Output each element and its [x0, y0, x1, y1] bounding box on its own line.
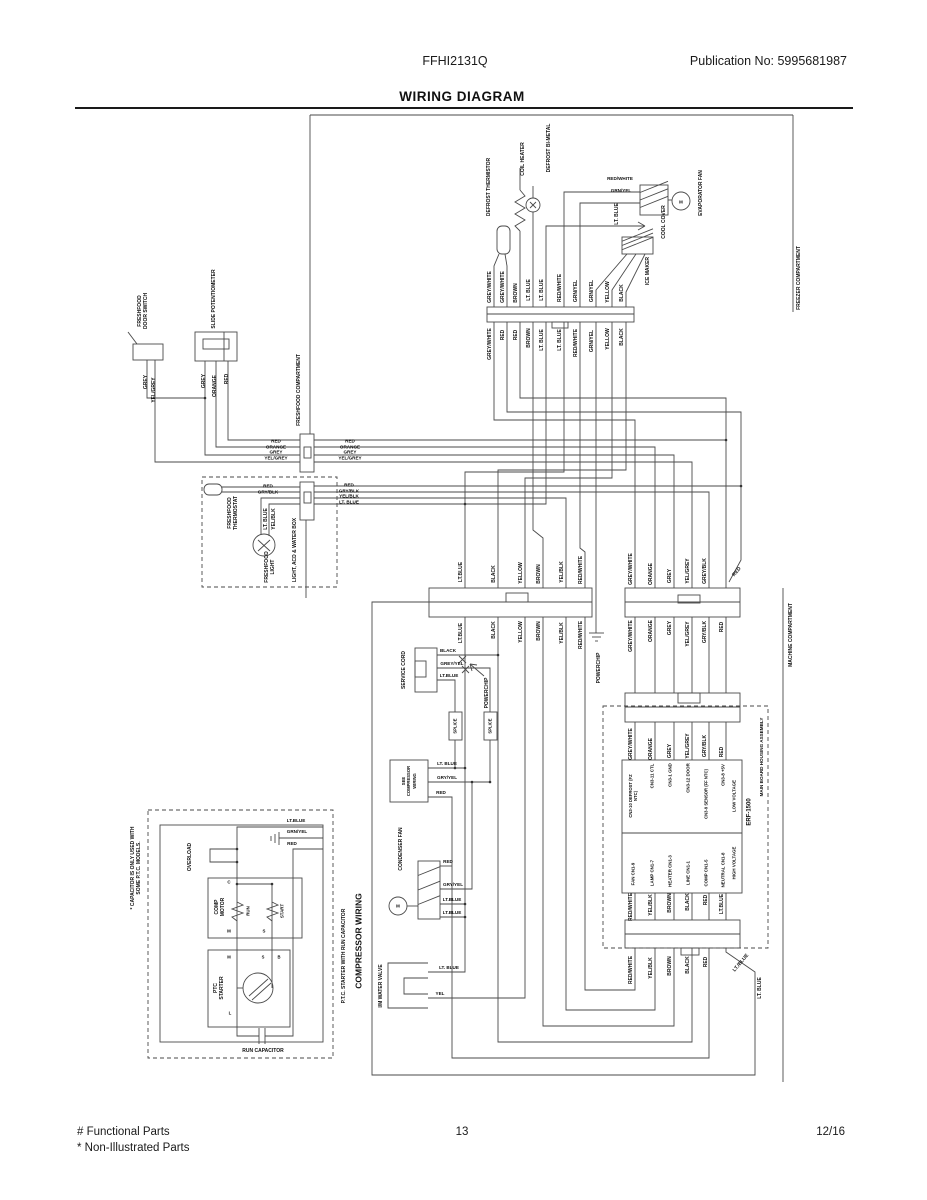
diagram-label: GREY/WHITE	[628, 553, 634, 585]
wire	[388, 963, 428, 1008]
wire	[515, 190, 525, 231]
diagram-label: YEL/BLK	[648, 957, 654, 978]
component-box	[429, 588, 592, 617]
diagram-label: YEL/BLK	[271, 508, 277, 529]
diagram-label: LT.BLUE	[287, 818, 306, 824]
diagram-label: FRESHFOOD THERMOSTAT	[227, 496, 240, 530]
wire	[437, 680, 455, 712]
diagram-label: COMP CN1-5	[703, 860, 709, 887]
diagram-label: ICE MAKER	[645, 257, 651, 285]
diagram-label: LT.BLUE	[719, 894, 725, 914]
wire	[372, 602, 755, 1075]
diagram-label: GRY/YEL	[443, 882, 463, 888]
diagram-label: RED	[703, 895, 709, 906]
diagram-label: GRN/YEL	[287, 829, 307, 835]
diagram-label: ORANGE	[648, 738, 654, 760]
diagram-label: CN3-9 SENSOR (FF NTC)	[703, 769, 708, 819]
diagram-label: OVERLOAD	[187, 843, 193, 871]
component-box	[300, 482, 314, 520]
wiring-diagram: FRESHFOOD DOOR SWITCHGREYYEL/GREYSLIDE P…	[0, 0, 927, 1200]
component-box	[625, 588, 740, 617]
diagram-label: GREY	[143, 375, 149, 389]
wire	[210, 849, 237, 862]
diagram-label: CONDENSER FAN	[398, 827, 404, 870]
junction-dot	[497, 654, 500, 657]
diagram-label: GREY/WHITE	[487, 328, 493, 360]
wire	[440, 782, 472, 889]
footer-functional-parts: # Functional Parts	[77, 1126, 170, 1138]
component-box	[304, 447, 311, 458]
diagram-label: FAN CN1-9	[630, 863, 636, 886]
diagram-label: S	[263, 928, 266, 934]
wire	[626, 254, 645, 307]
wire	[252, 983, 271, 1000]
diagram-label: FREEZER COMPARTMENT	[796, 246, 802, 310]
diagram-label: NEUTRAL CN1-8	[720, 853, 726, 888]
diagram-label: BROWN	[667, 956, 673, 975]
diagram-label: RED GRY/BLK YEL/BLK LT. BLUE	[339, 483, 360, 506]
diagram-label: GREY/WHITE	[628, 620, 634, 652]
diagram-label: CN3-1 GND	[667, 763, 673, 787]
diagram-label: GRN/YEL	[573, 280, 579, 302]
component-box	[195, 332, 237, 361]
wire	[566, 617, 655, 1010]
diagram-label: YEL/GREY	[685, 621, 691, 646]
diagram-label: ORANGE	[648, 620, 654, 642]
diagram-label: RED GRY/BLK	[258, 483, 279, 494]
hatch-line	[418, 896, 440, 905]
diagram-label: BROWN	[536, 621, 542, 640]
wire	[237, 827, 323, 878]
component-box	[418, 861, 440, 919]
component-box	[681, 948, 699, 955]
junction-dot	[464, 903, 467, 906]
junction-dot	[489, 781, 492, 784]
wire	[128, 332, 137, 344]
diagram-label: EVAPORATOR FAN	[698, 170, 704, 216]
wire	[465, 322, 546, 504]
diagram-label: S	[262, 954, 265, 959]
diagram-label: LT. BLUE	[757, 977, 763, 999]
diagram-label: CN3-12 DOOR	[685, 763, 691, 793]
footer-page-number: 13	[456, 1126, 469, 1138]
wire	[507, 322, 741, 582]
diagram-label: FRESHFOOD COMPARTMENT	[296, 354, 302, 426]
diagram-label: ORANGE	[648, 563, 654, 585]
diagram-label: BROWN	[536, 564, 542, 583]
diagram-label: RED	[436, 790, 446, 796]
diagram-label: YELLOW	[605, 328, 611, 349]
diagram-label: LT.BLUE	[440, 673, 459, 679]
diagram-label: BLACK	[619, 328, 625, 346]
diagram-label: LT. BLUE	[526, 279, 532, 301]
diagram-label: BLACK	[685, 956, 691, 974]
diagram-label: * CAPACITOR IS ONLY USED WITH SOME P.T.C…	[130, 827, 143, 910]
diagram-label: P.T.C. STARTER WITH RUN CAPACITOR	[341, 909, 347, 1004]
diagram-label: RED	[719, 622, 725, 633]
wire	[543, 617, 674, 1026]
diagram-label: PTC STARTER	[213, 976, 226, 999]
diagram-label: HEATER CN1-3	[667, 855, 673, 887]
diagram-label: YEL/BLK	[648, 894, 654, 915]
diagram-label: FRESHFOOD DOOR SWITCH	[137, 293, 150, 329]
diagram-label: C	[227, 879, 230, 885]
diagram-label: LT.BLUE	[458, 562, 464, 582]
component-box	[506, 593, 528, 602]
diagram-label: BLACK	[491, 565, 497, 583]
diagram-label: LOW VOLTAGE	[731, 780, 737, 812]
wire	[228, 361, 300, 440]
diagram-label: RUN CAPACITOR	[242, 1048, 283, 1054]
junction-dot	[204, 397, 207, 400]
diagram-label: M	[679, 199, 683, 205]
component-box	[415, 661, 426, 677]
diagram-label: POWERCHIP	[484, 678, 490, 709]
dashed-boundary-box	[148, 810, 333, 1058]
diagram-label: MAIN BOARD HOUSING ASSEMBLY	[759, 718, 765, 797]
wire	[267, 902, 278, 921]
diagram-label: LT. BLUE	[263, 508, 269, 530]
diagram-label: SPLICE	[487, 718, 492, 733]
diagram-label: COMPRESSOR WIRING	[354, 893, 365, 988]
diagram-label: M	[227, 954, 231, 959]
diagram-label: ERF-1500	[746, 798, 754, 825]
wire	[237, 884, 272, 938]
junction-dot	[464, 503, 467, 506]
diagram-label: RED/WHITE	[607, 176, 633, 182]
wiring-diagram-canvas	[0, 0, 927, 1200]
diagram-label: HIGH VOLTAGE	[731, 847, 737, 880]
diagram-label: LT. BLUE	[539, 279, 545, 301]
diagram-label: YELLOW	[518, 621, 524, 642]
diagram-label: LT. BLUE	[557, 329, 563, 351]
diagram-label: RED ORANGE GREY YEL/GREY	[264, 439, 287, 462]
diagram-label: CN3-11 CTL	[649, 764, 655, 789]
diagram-label: GRY/BLK	[702, 621, 708, 643]
diagram-label: M	[227, 928, 231, 934]
diagram-label: GREY	[667, 744, 673, 758]
diagram-label: SLIDE POTENTIOMETER	[211, 269, 217, 328]
diagram-label: BROWN	[526, 328, 532, 347]
component-box	[204, 484, 222, 495]
diagram-label: LT.BLUE	[443, 910, 462, 916]
junction-dot	[236, 883, 239, 886]
component-box	[160, 825, 323, 1042]
wire	[232, 902, 243, 921]
component-box	[497, 226, 510, 254]
component-box	[625, 693, 740, 722]
diagram-label: M	[396, 903, 400, 909]
diagram-label: RED/WHITE	[628, 893, 634, 921]
diagram-label: RED/WHITE	[573, 329, 579, 357]
wiring-diagram-page: { "header": { "model": "FFHI2131Q", "pub…	[0, 0, 927, 1200]
diagram-label: RED	[703, 957, 709, 968]
diagram-label: MACHINE COMPARTMENT	[788, 603, 794, 667]
diagram-label: YEL/GREY	[151, 377, 157, 402]
hatch-line	[418, 881, 440, 890]
junction-dot	[464, 767, 467, 770]
component-box	[203, 339, 229, 349]
diagram-label: SEE COMPRESSOR WIRING	[401, 766, 417, 796]
diagram-label: GRN/YEL	[589, 330, 595, 352]
diagram-label: GRN/YEL	[589, 280, 595, 302]
diagram-label: RED/WHITE	[628, 956, 634, 984]
junction-dot	[740, 485, 743, 488]
diagram-label: LT. BLUE	[437, 761, 457, 767]
wire	[249, 979, 268, 996]
diagram-label: BROWN	[513, 283, 519, 302]
diagram-label: GRN/YEL	[611, 188, 631, 194]
junction-dot	[464, 916, 467, 919]
diagram-label: RED	[513, 330, 519, 341]
wire	[314, 498, 566, 588]
diagram-label: BLACK	[685, 893, 691, 911]
diagram-label: LAMP CN1-7	[649, 860, 655, 886]
diagram-label: ORANGE	[212, 375, 218, 397]
junction-dot	[236, 861, 239, 864]
diagram-label: BLACK	[619, 284, 625, 302]
diagram-label: RED	[443, 859, 453, 865]
diagram-label: RED/WHITE	[578, 556, 584, 584]
diagram-label: YEL/GREY	[685, 733, 691, 758]
diagram-label: L	[229, 1010, 232, 1016]
diagram-label: RED/WHITE	[578, 621, 584, 649]
footer-date: 12/16	[816, 1126, 845, 1138]
diagram-label: BROWN	[667, 893, 673, 912]
junction-dot	[236, 848, 239, 851]
wire	[404, 978, 428, 994]
diagram-label: RED	[500, 330, 506, 341]
diagram-label: RED/WHITE	[557, 274, 563, 302]
diagram-label: COMP MOTOR	[214, 898, 227, 917]
component-box	[304, 492, 311, 503]
diagram-label: I/M WATER VALVE	[378, 964, 384, 1007]
wire	[265, 849, 323, 1036]
junction-dot	[454, 767, 457, 770]
diagram-label: LT. BLUE	[539, 329, 545, 351]
diagram-label: RED	[719, 747, 725, 758]
diagram-label: GREY/YEL	[440, 661, 463, 667]
junction-dot	[725, 439, 728, 442]
footer-non-illustrated-parts: * Non-Illustrated Parts	[77, 1142, 190, 1154]
diagram-label: YEL/BLK	[559, 622, 565, 643]
diagram-label: GREY/WHITE	[628, 728, 634, 760]
wire	[428, 797, 709, 1058]
wire	[465, 322, 564, 504]
wire	[638, 226, 645, 230]
diagram-label: GRY/BLK	[702, 735, 708, 757]
diagram-label: LIGHT, ACD & WATER BOX	[292, 518, 298, 582]
diagram-label: RED	[224, 374, 230, 385]
component-box	[487, 307, 634, 322]
wire	[314, 447, 655, 588]
diagram-label: SERVICE CORD	[401, 651, 407, 689]
component-box	[552, 322, 568, 328]
diagram-label: LT.BLUE	[443, 897, 462, 903]
component-box	[300, 434, 314, 472]
diagram-label: DEFROST THERMISTOR	[486, 158, 492, 216]
diagram-label: COOL COVER	[661, 205, 667, 239]
diagram-label: CN3-8 +5V	[720, 764, 726, 786]
junction-dot	[471, 781, 474, 784]
diagram-label: BLACK	[440, 648, 456, 654]
hatch-line	[418, 867, 440, 876]
diagram-label: YELLOW	[605, 281, 611, 302]
diagram-label: RUN	[245, 906, 251, 916]
junction-dot	[271, 883, 274, 886]
diagram-label: CN3-10 DEFROST (FZ NTC)	[628, 774, 639, 817]
wire	[638, 222, 645, 226]
diagram-label: GRY/YEL	[437, 775, 457, 781]
diagram-label: START	[279, 904, 285, 918]
wire	[494, 254, 499, 307]
diagram-label: RED	[287, 841, 297, 847]
component-box	[678, 693, 700, 703]
diagram-label: POWERCHIP	[596, 653, 602, 684]
diagram-label: SPLICE	[452, 718, 457, 733]
diagram-label: GREY/WHITE	[487, 271, 493, 303]
diagram-label: COIL HEATER	[520, 142, 526, 175]
diagram-label: YEL/BLK	[559, 561, 565, 582]
diagram-label: GREY	[667, 569, 673, 583]
wire	[237, 988, 259, 1036]
diagram-label: BLACK	[491, 621, 497, 639]
diagram-label: LT. BLUE	[614, 203, 620, 225]
diagram-label: DEFROST BI-METAL	[546, 124, 552, 173]
diagram-label: YELLOW	[518, 562, 524, 583]
diagram-label: GREY	[667, 621, 673, 635]
diagram-label: RED ORANGE GREY YEL/GREY	[338, 439, 361, 462]
diagram-label: YEL	[436, 991, 445, 997]
diagram-label: LT.BLUE	[458, 623, 464, 643]
diagram-label: LT. BLUE	[439, 965, 459, 971]
diagram-label: GREY	[201, 374, 207, 388]
diagram-label: GREY/BLK	[702, 558, 708, 584]
diagram-label: B	[277, 954, 280, 959]
component-box	[133, 344, 163, 360]
diagram-label: LINE CN1-1	[685, 861, 691, 885]
diagram-label: FRESHFOOD LIGHT	[264, 551, 277, 582]
diagram-label: GREY/WHITE	[500, 271, 506, 303]
diagram-label: YEL/GREY	[685, 558, 691, 583]
